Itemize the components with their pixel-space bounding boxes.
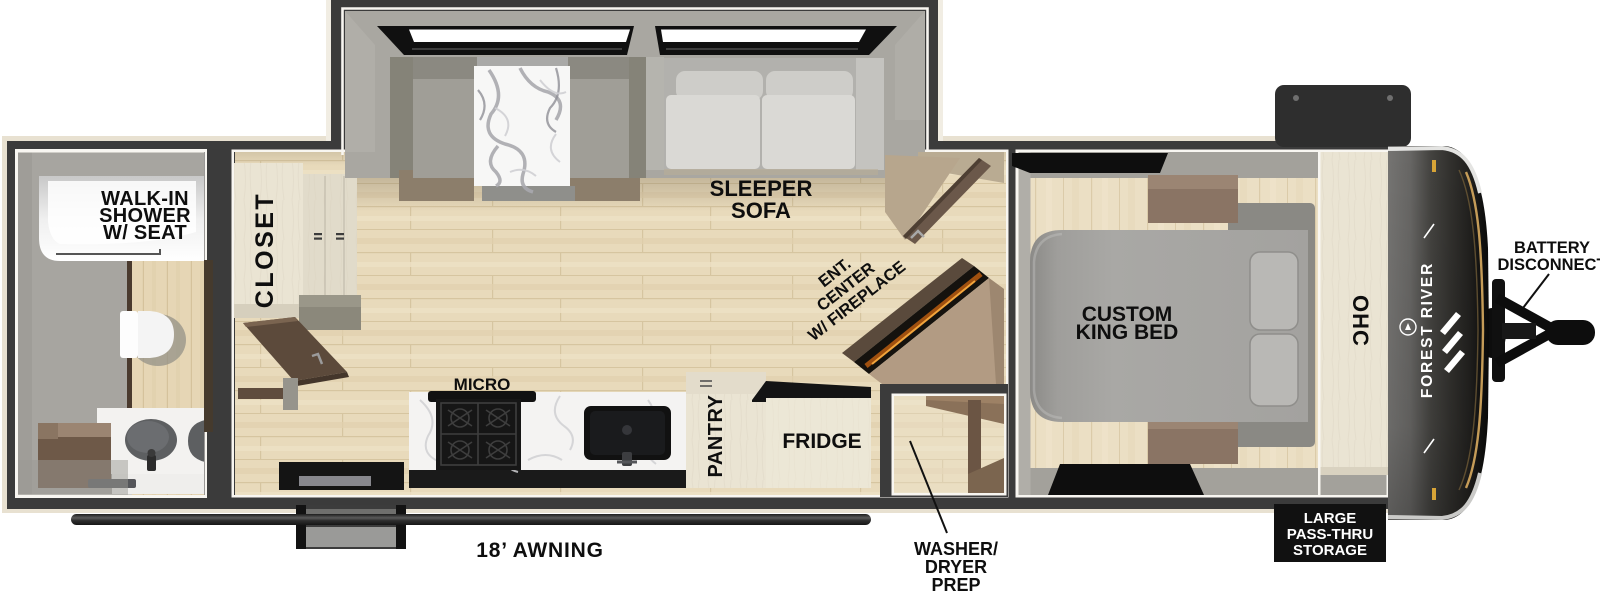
svg-text:FOREST RIVER: FOREST RIVER — [1419, 262, 1436, 398]
svg-text:LARGE: LARGE — [1304, 510, 1357, 527]
svg-text:BATTERY: BATTERY — [1514, 239, 1590, 257]
svg-text:STORAGE: STORAGE — [1293, 542, 1367, 559]
svg-text:DRYER: DRYER — [925, 557, 987, 577]
svg-text:PREP: PREP — [931, 575, 980, 592]
svg-text:FRIDGE: FRIDGE — [782, 430, 861, 453]
svg-text:SOFA: SOFA — [731, 198, 791, 223]
svg-text:WASHER/: WASHER/ — [914, 539, 998, 559]
svg-text:W/ SEAT: W/ SEAT — [103, 222, 187, 244]
svg-text:KING BED: KING BED — [1076, 321, 1179, 344]
svg-text:CLOSET: CLOSET — [251, 192, 279, 308]
svg-text:MICRO: MICRO — [454, 375, 511, 394]
svg-text:DISCONNECT: DISCONNECT — [1497, 256, 1600, 274]
svg-text:18’ AWNING: 18’ AWNING — [476, 539, 603, 562]
svg-text:PANTRY: PANTRY — [705, 394, 727, 477]
svg-text:OHC: OHC — [1348, 295, 1373, 347]
svg-text:PASS-THRU: PASS-THRU — [1287, 526, 1373, 543]
